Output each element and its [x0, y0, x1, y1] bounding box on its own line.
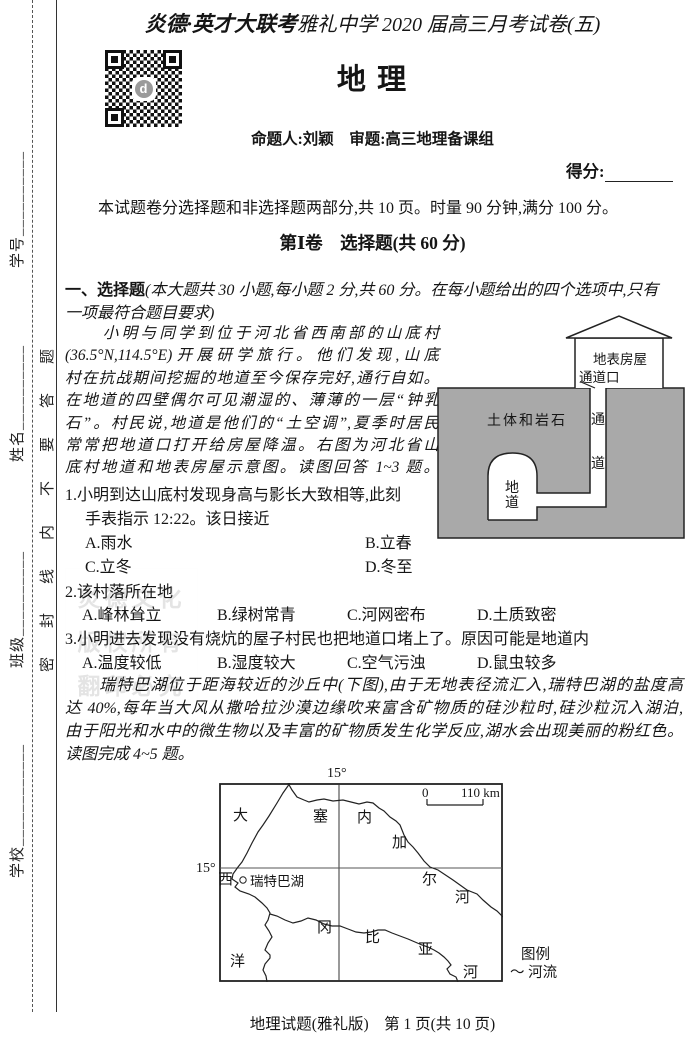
- intro-line: 本试题卷分选择题和非选择题两部分,共 10 页。时量 90 分钟,满分 100 …: [98, 194, 618, 218]
- scale-end-label: 110 km: [461, 785, 500, 800]
- senegal-label-char: 加: [392, 834, 407, 851]
- score-line: 得分:: [566, 158, 673, 182]
- senegal-label-char: 塞: [313, 807, 328, 825]
- passage-line: 达 40%,每年当大风从撒哈拉沙漠边缘吹来富含矿物质的硅沙粒时,硅沙粒沉入湖泊,: [65, 697, 683, 720]
- passage-line: 小明与同学到位于河北省西南部的山底村: [65, 323, 439, 345]
- passage-line: 底村地道和地表房屋示意图。读图回答 1~3 题。: [65, 457, 439, 479]
- gambia-label-char: 河: [463, 964, 478, 981]
- q1-stem-line2: 手表指示 12:22。该日接近: [85, 505, 269, 529]
- seal-field-name: 姓名__________: [6, 345, 27, 462]
- river-symbol-icon: ～: [510, 965, 525, 981]
- gambia-label-char: 亚: [418, 942, 433, 958]
- exam-header: 炎德·英才大联考雅礼中学 2020 届高三月考试卷(五): [60, 8, 685, 38]
- passage-line: 村在抗战期间挖掘的地道至今保存完好,通行自如。: [65, 368, 439, 390]
- tunnel-diagram: 地表房屋 通道口 土体和岩石 通 道 地 道: [435, 308, 685, 543]
- instruction-line-2: 一项最符合题目要求): [65, 299, 214, 323]
- lake-retba-label: 瑞特巴湖: [250, 874, 304, 889]
- q1-stem-line1: 1.小明到达山底村发现身高与影长大致相等,此刻: [65, 481, 401, 505]
- q2-option-a: A.峰林耸立: [82, 601, 162, 625]
- lake-retba-marker: [240, 877, 246, 883]
- q1-option-a: A.雨水: [85, 529, 133, 553]
- entrance-label: 通道口: [579, 370, 620, 385]
- senegal-label-char: 尔: [422, 871, 437, 888]
- passage-line: 瑞特巴湖位于距海较近的沙丘中(下图),由于无地表径流汇入,瑞特巴湖的盐度高: [65, 674, 683, 697]
- instruction-lead: 一、选择题: [65, 282, 145, 299]
- ocean-label-char: 大: [233, 807, 248, 824]
- brand-name: 炎德·英才大联考: [145, 12, 297, 36]
- q1-option-c: C.立冬: [85, 553, 132, 577]
- q1-option-b: B.立春: [365, 529, 412, 553]
- ocean-label-char: 西: [219, 872, 233, 888]
- passage-line: 在地道的四壁偶尔可见潮湿的、薄薄的一层“钟乳: [65, 390, 439, 412]
- shaft-label-char: 通: [591, 412, 605, 428]
- map-legend-item: ～ 河流: [510, 961, 557, 982]
- tunnel-label-char: 地: [505, 480, 519, 496]
- q2-option-c: C.河网密布: [347, 601, 426, 625]
- score-blank: [605, 164, 673, 182]
- q2-option-b: B.绿树常青: [217, 601, 296, 625]
- qr-finder-icon: [105, 108, 124, 127]
- q3-stem: 3.小明进去发现没有烧炕的屋子村民也把地道口堵上了。原因可能是地道内: [65, 625, 589, 649]
- passage-line: 石”。村民说,地道是他们的“土空调”,夏季时居民: [65, 413, 439, 435]
- q3-option-c: C.空气污浊: [347, 649, 426, 673]
- ocean-label-char: 洋: [230, 953, 245, 970]
- passage-2: 瑞特巴湖位于距海较近的沙丘中(下图),由于无地表径流汇入,瑞特巴湖的盐度高 达 …: [65, 674, 683, 766]
- senegal-label-char: 河: [455, 889, 470, 906]
- q3-option-b: B.湿度较大: [217, 649, 296, 673]
- seal-field-class: 班级__________: [6, 551, 27, 668]
- passage-1: 小明与同学到位于河北省西南部的山底村 (36.5°N,114.5°E)开展研学旅…: [65, 323, 439, 480]
- map-longitude-label: 15°: [327, 766, 347, 782]
- q2-stem: 2.该村落所在地: [65, 578, 173, 602]
- q2-option-d: D.土质致密: [477, 601, 557, 625]
- instruction-rest: (本大题共 30 小题,每小题 2 分,共 60 分。在每小题给出的四个选项中,…: [145, 282, 658, 299]
- exam-title: 雅礼中学 2020 届高三月考试卷(五): [297, 14, 600, 36]
- senegal-label-char: 内: [357, 809, 372, 826]
- seal-field-number: 学号__________: [6, 151, 27, 268]
- q3-option-d: D.鼠虫较多: [477, 649, 557, 673]
- q3-option-a: A.温度较低: [82, 649, 162, 673]
- map-figure: 0 110 km 大 西 洋 塞 内 加 尔 河 瑞特巴湖 冈 比 亚 河: [219, 783, 503, 982]
- rock-label: 土体和岩石: [487, 413, 567, 429]
- seal-warning-text: 密封线内不要答题: [36, 320, 57, 672]
- section-heading: 第Ⅰ卷 选择题(共 60 分): [60, 230, 685, 255]
- instruction-line-1: 一、选择题(本大题共 30 小题,每小题 2 分,共 60 分。在每小题给出的四…: [65, 276, 658, 300]
- passage-line: (36.5°N,114.5°E)开展研学旅行。他们发现,山底: [65, 345, 439, 367]
- house-roof: [566, 316, 672, 338]
- shaft-label-char: 道: [591, 456, 605, 472]
- q1-option-d: D.冬至: [365, 553, 413, 577]
- rock-body: [438, 388, 684, 538]
- river-legend-label: 河流: [528, 965, 557, 981]
- setters-line: 命题人:刘颖 审题:高三地理备课组: [60, 127, 685, 149]
- score-label: 得分:: [566, 162, 605, 181]
- passage-line: 常常把地道口打开给房屋降温。右图为河北省山: [65, 435, 439, 457]
- house-label: 地表房屋: [593, 352, 647, 367]
- seal-dashed-line: [32, 0, 33, 1012]
- gambia-label-char: 冈: [317, 920, 332, 936]
- seal-field-school: 学校____________: [6, 744, 27, 878]
- page-footer: 地理试题(雅礼版) 第 1 页(共 10 页): [60, 1012, 685, 1034]
- gambia-label-char: 比: [365, 929, 380, 946]
- map-latitude-label: 15°: [196, 861, 216, 877]
- content-column: 炎德·英才大联考雅礼中学 2020 届高三月考试卷(五) d 地 理 命题人:刘…: [60, 0, 685, 1049]
- scale-start-label: 0: [422, 785, 429, 800]
- exam-page: 炎德文化 版权所有 翻印必究 学号__________ 姓名__________…: [0, 0, 700, 1049]
- tunnel-label-char: 道: [505, 495, 519, 511]
- subject-title: 地 理: [60, 56, 685, 98]
- passage-line: 由于阳光和水中的微生物以及丰富的矿物质发生化学反应,湖水会出现美丽的粉红色。: [65, 720, 683, 743]
- passage-line: 读图完成 4~5 题。: [65, 743, 683, 766]
